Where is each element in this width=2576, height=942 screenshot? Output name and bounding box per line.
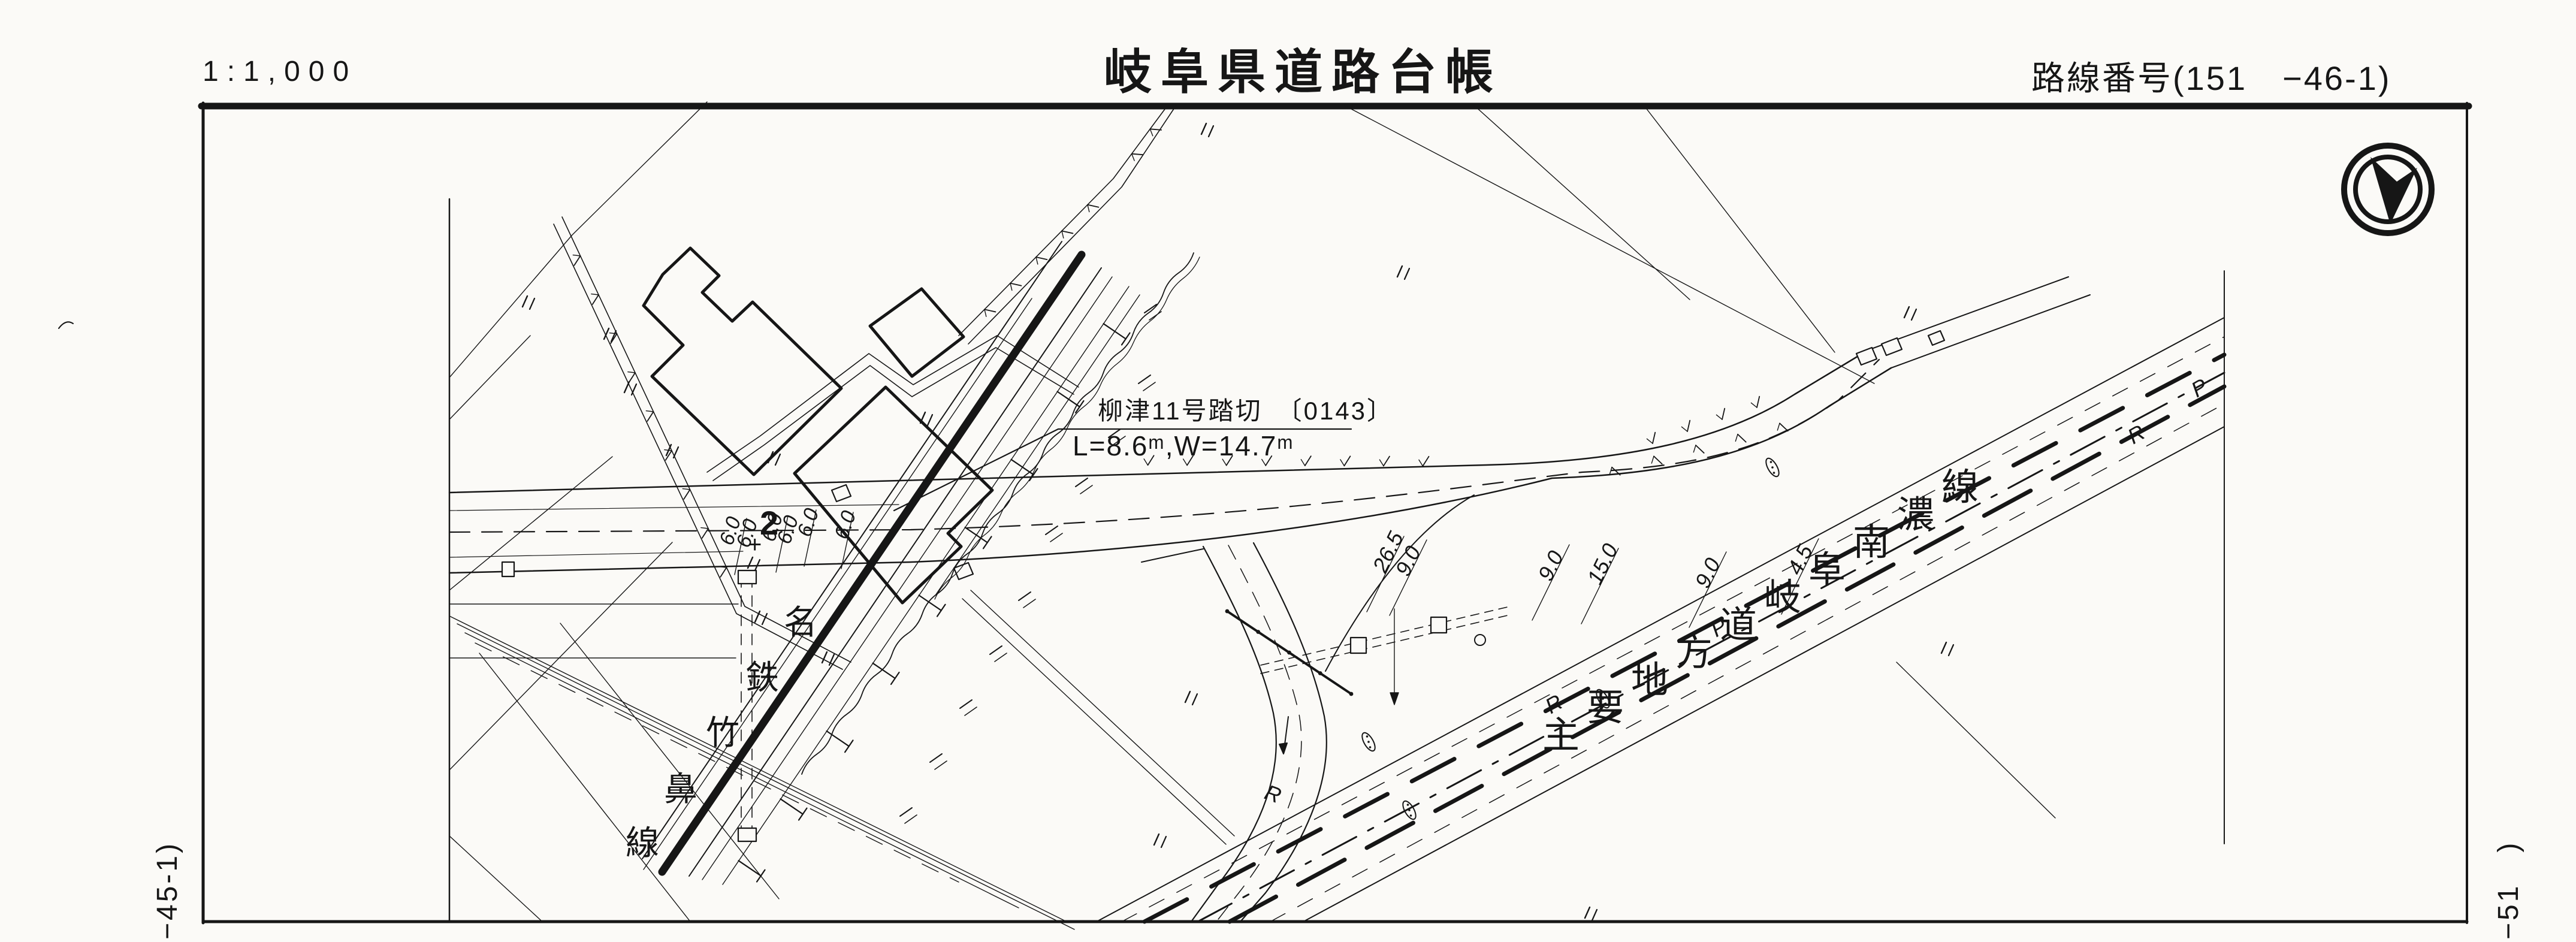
slope-hatch-mark bbox=[1080, 485, 1092, 494]
embankment-tick bbox=[1419, 460, 1423, 466]
embankment-tick bbox=[1036, 257, 1038, 264]
embankment-tick bbox=[682, 489, 690, 490]
survey-boundary-line bbox=[449, 199, 2224, 922]
utility-pole-icon bbox=[781, 799, 803, 814]
field-ditto-mark bbox=[1405, 268, 1409, 279]
field-ditto-mark bbox=[624, 382, 629, 393]
utility-pole-icon bbox=[1076, 401, 1083, 413]
slope-hatch-mark bbox=[930, 754, 942, 762]
embankment-tick bbox=[720, 567, 726, 577]
embankment-tick bbox=[1340, 460, 1344, 466]
embankment-tick bbox=[609, 333, 617, 334]
road-ledger-sheet: 1:1,000 岐阜県道路台帳 路線番号(151 −46-1) −45-1) −… bbox=[0, 0, 2576, 942]
utility-pole-icon bbox=[873, 663, 895, 678]
embankment-tick bbox=[985, 309, 986, 316]
slope-hatch-mark bbox=[960, 700, 972, 708]
slope-hatch-mark bbox=[905, 815, 917, 823]
embankment-tick bbox=[573, 255, 580, 256]
embankment-tick bbox=[1693, 445, 1696, 452]
embankment-tick bbox=[1150, 129, 1152, 135]
embankment-tick bbox=[1653, 433, 1655, 443]
road-name-label: 南 bbox=[1853, 522, 1890, 563]
embankment-tick bbox=[1036, 257, 1047, 259]
slope-hatch-mark bbox=[935, 761, 947, 769]
utility-pole-icon bbox=[983, 536, 991, 548]
road-name-label: 地 bbox=[1631, 660, 1668, 701]
field-ditto-mark bbox=[1397, 266, 1402, 277]
embankment-tick bbox=[629, 373, 635, 382]
utility-pole-icon bbox=[799, 808, 807, 820]
slope-hatch-mark bbox=[1050, 533, 1062, 542]
embankment-tick bbox=[665, 450, 672, 451]
width-dimension: 6.0 bbox=[793, 506, 823, 540]
field-ditto-mark bbox=[1192, 694, 1197, 705]
slope-hatch-mark bbox=[1149, 312, 1161, 320]
embankment-tick bbox=[1062, 231, 1073, 233]
slope-hatch-mark bbox=[995, 653, 1007, 662]
roadside-oval-marker bbox=[1771, 466, 1774, 469]
field-ditto-mark bbox=[928, 415, 932, 425]
roadside-oval-marker bbox=[1408, 809, 1411, 811]
fence-dot bbox=[1318, 671, 1322, 675]
utility-pole-icon bbox=[919, 595, 941, 610]
field-ditto-mark bbox=[523, 296, 527, 307]
embankment-tick bbox=[628, 372, 635, 373]
width-dimension: 15.0 bbox=[1582, 540, 1623, 588]
field-ditto-mark bbox=[762, 614, 767, 624]
roadside-oval-marker bbox=[1367, 741, 1370, 743]
branch-road bbox=[1191, 543, 1327, 922]
embankment-tick bbox=[1132, 154, 1143, 155]
embankment-tick bbox=[1010, 283, 1021, 286]
railway-name-label: 線 bbox=[626, 824, 659, 862]
roadside-oval-marker bbox=[1602, 698, 1604, 700]
railway-name-label: 鉄 bbox=[745, 659, 779, 696]
utility-pole-icon bbox=[937, 605, 945, 617]
embankment-tick bbox=[591, 294, 599, 295]
embankment-tick bbox=[1681, 427, 1687, 431]
slope-hatch-mark bbox=[1076, 478, 1088, 487]
field-ditto-mark bbox=[1154, 834, 1159, 845]
roadside-oval-marker bbox=[1407, 804, 1409, 806]
embankment-tick bbox=[1687, 421, 1690, 431]
embankment-tick bbox=[701, 528, 708, 529]
roadside-oval-marker bbox=[1773, 472, 1775, 474]
fence-dot bbox=[1256, 630, 1260, 634]
width-dimension: 9.0 bbox=[1533, 547, 1568, 585]
railway-name-label: 鼻 bbox=[664, 770, 697, 808]
roadside-oval-marker bbox=[1600, 692, 1603, 695]
embankment-tick bbox=[1716, 415, 1722, 419]
slope-hatch-mark bbox=[965, 707, 977, 715]
embankment-tick bbox=[1379, 460, 1383, 466]
embankment-tick bbox=[1654, 456, 1662, 464]
embankment-tick bbox=[1780, 423, 1788, 431]
roadside-oval-marker bbox=[1369, 746, 1372, 748]
slope-hatch-mark bbox=[1019, 592, 1031, 600]
embankment-tick bbox=[1150, 129, 1161, 130]
embankment-tick bbox=[1722, 409, 1725, 419]
field-ditto-mark bbox=[1161, 837, 1166, 847]
embankment-tick bbox=[702, 529, 708, 538]
embankment-tick bbox=[1062, 231, 1064, 238]
crossing-title-label: 柳津11号踏切 〔0143〕 bbox=[1098, 397, 1394, 425]
road-letter-mark: R bbox=[2124, 419, 2149, 449]
embankment-tick bbox=[1647, 439, 1653, 443]
buildings bbox=[644, 248, 992, 603]
field-ditto-mark bbox=[1201, 123, 1206, 134]
road-name-label: 方 bbox=[1675, 632, 1713, 674]
road-name-label: 岐 bbox=[1764, 577, 1801, 618]
sheet-border bbox=[201, 103, 2469, 923]
field-ditto-mark bbox=[632, 384, 636, 395]
embankment-tick bbox=[1751, 403, 1757, 407]
field-ditto-mark bbox=[1592, 910, 1597, 920]
slope-hatch-mark bbox=[1138, 375, 1150, 384]
scan-mark bbox=[59, 322, 73, 328]
utility-pole-icon bbox=[1104, 324, 1126, 339]
embankment-tick bbox=[593, 295, 599, 304]
embankment-tick bbox=[574, 256, 580, 265]
embankment-tick bbox=[1384, 457, 1390, 466]
road-letter-mark: R bbox=[1261, 780, 1284, 808]
field-ditto-mark bbox=[1949, 645, 1953, 656]
field-ditto-mark bbox=[1904, 307, 1909, 318]
field-ditto-mark bbox=[1911, 309, 1916, 320]
embankment-tick bbox=[1696, 445, 1704, 453]
embankment-tick bbox=[1301, 460, 1304, 466]
embankment-tick bbox=[1088, 205, 1089, 212]
road-letter-mark: P bbox=[2187, 373, 2212, 402]
embankment-tick bbox=[985, 309, 995, 312]
fence-dot bbox=[1225, 609, 1230, 614]
width-dimension: 9.0 bbox=[1690, 554, 1725, 592]
roadside-oval-marker bbox=[1770, 461, 1772, 463]
embankment-tick bbox=[1735, 434, 1738, 442]
railway-name-label: 名 bbox=[784, 603, 817, 641]
north-arrow-icon bbox=[2344, 146, 2432, 233]
roadside-oval-marker bbox=[1603, 703, 1606, 705]
field-ditto-mark bbox=[1209, 126, 1213, 137]
utility-pole-icon bbox=[845, 740, 853, 752]
embankment-tick bbox=[1344, 456, 1350, 466]
embankment-tick bbox=[1132, 154, 1134, 161]
utility-pole-icon bbox=[1058, 391, 1080, 406]
embankment-tick bbox=[1757, 397, 1759, 407]
stream-line bbox=[802, 253, 1194, 774]
field-ditto-mark bbox=[674, 447, 678, 458]
crossing-size-label: L=8.6ᵐ,W=14.7ᵐ bbox=[1073, 430, 1294, 461]
railway-name-label: 竹 bbox=[706, 714, 739, 751]
field-ditto-mark bbox=[775, 454, 780, 465]
road-name-label: 主 bbox=[1542, 715, 1580, 756]
field-ditto-mark bbox=[1185, 692, 1190, 702]
slope-hatch-mark bbox=[1143, 382, 1155, 391]
main-road bbox=[449, 277, 2090, 671]
slope-hatch-mark bbox=[990, 646, 1002, 654]
road-name-label: 線 bbox=[1941, 467, 1979, 508]
slope-hatch-mark bbox=[900, 808, 912, 816]
embankment-tick bbox=[1423, 457, 1429, 466]
roadside-oval-marker bbox=[1410, 814, 1412, 817]
field-ditto-mark bbox=[530, 298, 534, 309]
utility-pole-icon bbox=[1029, 469, 1037, 481]
road-name-label: 濃 bbox=[1897, 494, 1934, 536]
utility-pole-icon bbox=[739, 861, 761, 875]
embankment-tick bbox=[647, 412, 653, 421]
embankment-tick bbox=[1088, 205, 1098, 207]
embankment-tick bbox=[1305, 456, 1311, 466]
utility-pole-icon bbox=[891, 672, 899, 684]
embankment-tick bbox=[1738, 434, 1746, 442]
field-ditto-mark bbox=[1585, 907, 1590, 918]
embankment-tick bbox=[1651, 456, 1654, 463]
slope-hatch-mark bbox=[1046, 526, 1058, 535]
fence-dot bbox=[1287, 651, 1291, 655]
roadside-oval-marker bbox=[1366, 735, 1369, 738]
embankment-tick bbox=[684, 490, 690, 499]
fence-dot bbox=[1349, 692, 1354, 696]
embankment-tick bbox=[646, 411, 653, 412]
slope-hatch-mark bbox=[1023, 599, 1035, 608]
map-drawing: 名鉄竹鼻線主要地方道岐阜南濃線柳津11号踏切 〔0143〕L=8.6ᵐ,W=14… bbox=[0, 0, 2576, 942]
field-ditto-mark bbox=[1941, 642, 1946, 653]
embankment-tick bbox=[1777, 423, 1780, 430]
width-dimension: 6.0 bbox=[830, 508, 860, 542]
embankment-tick bbox=[1010, 283, 1012, 291]
